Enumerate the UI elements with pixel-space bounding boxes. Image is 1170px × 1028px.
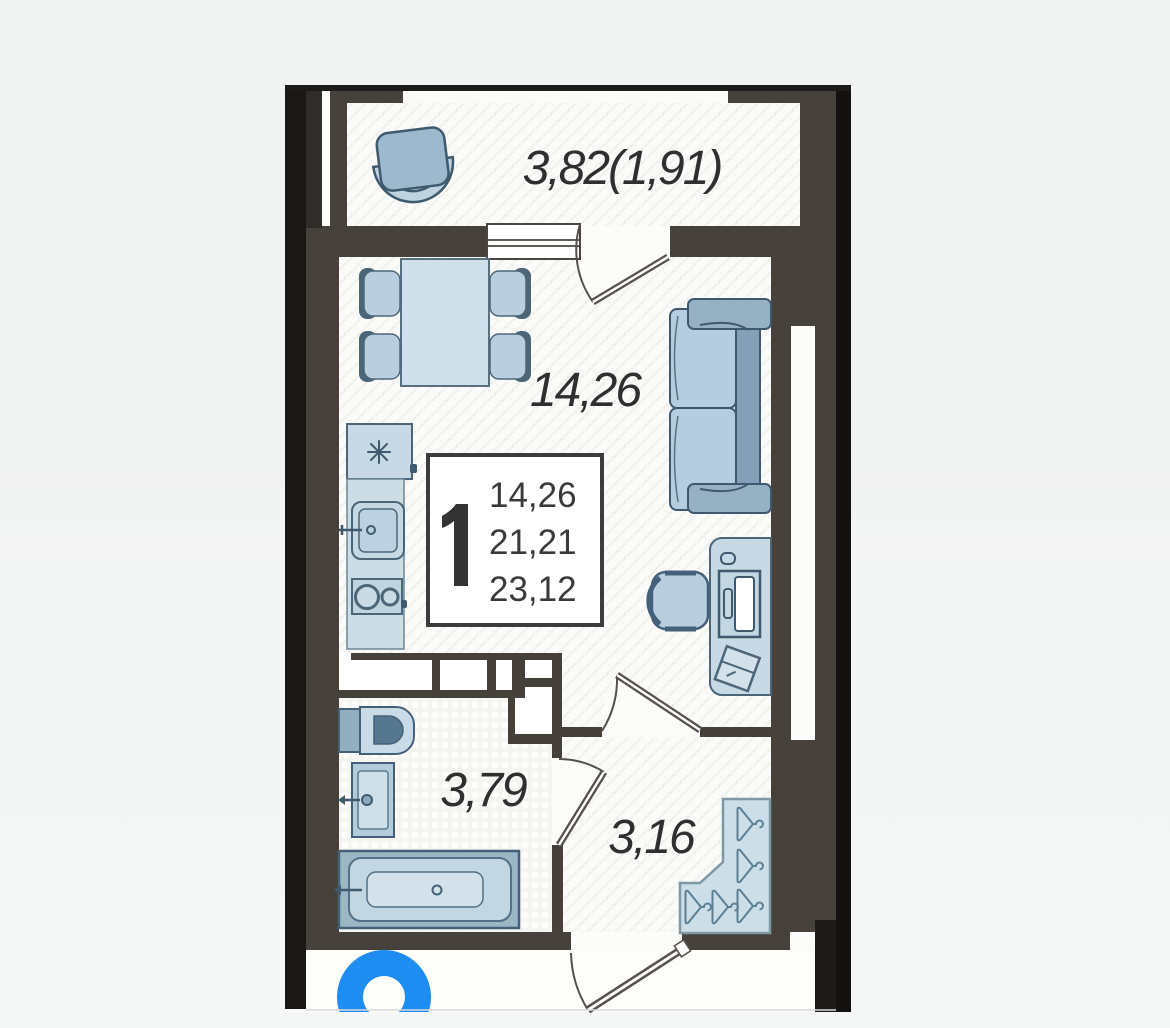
svg-text:3,82(1,91): 3,82(1,91) xyxy=(523,142,722,195)
svg-text:23,12: 23,12 xyxy=(489,570,577,609)
svg-text:3,16: 3,16 xyxy=(608,811,696,864)
svg-text:14,26: 14,26 xyxy=(530,364,642,417)
svg-text:3,79: 3,79 xyxy=(440,764,527,817)
svg-text:14,26: 14,26 xyxy=(489,476,577,515)
svg-text:21,21: 21,21 xyxy=(489,523,577,562)
